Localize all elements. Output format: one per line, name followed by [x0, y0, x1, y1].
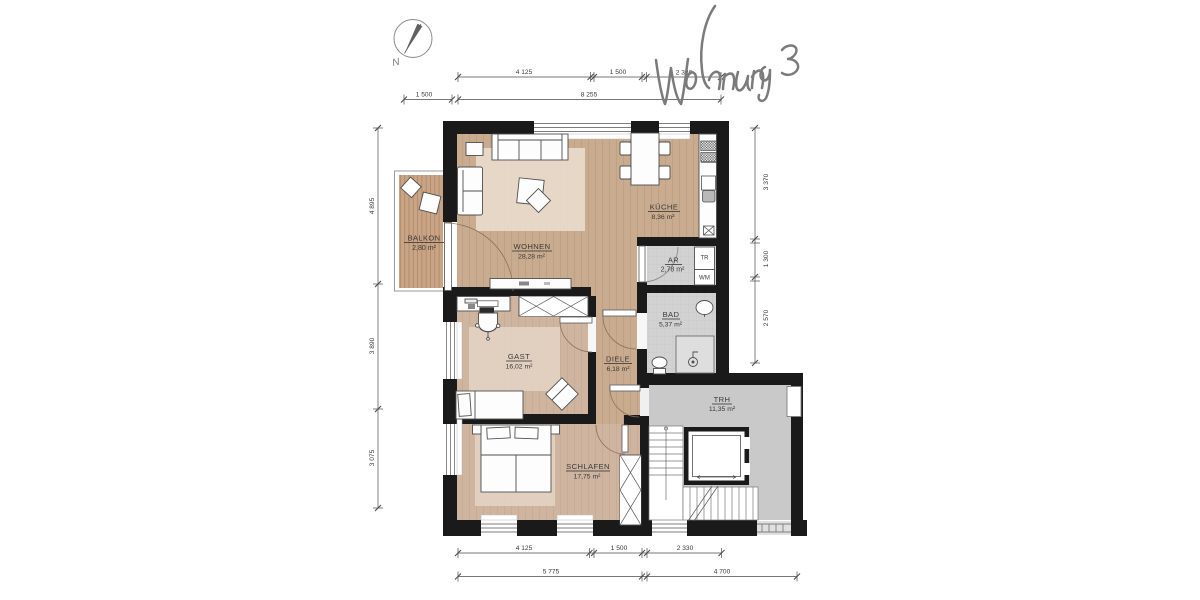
svg-text:WOHNEN: WOHNEN	[514, 242, 551, 251]
svg-text:5,37 m²: 5,37 m²	[659, 322, 683, 329]
svg-text:5 775: 5 775	[543, 569, 560, 576]
svg-text:4 125: 4 125	[516, 69, 533, 76]
svg-text:2 330: 2 330	[677, 545, 694, 552]
svg-text:1 500: 1 500	[611, 545, 628, 552]
svg-text:GAST: GAST	[508, 352, 530, 361]
svg-text:2 570: 2 570	[763, 309, 770, 326]
svg-text:1 500: 1 500	[416, 92, 433, 99]
svg-text:1 300: 1 300	[763, 250, 770, 267]
svg-text:2,80 m²: 2,80 m²	[412, 245, 436, 252]
svg-text:8 255: 8 255	[581, 92, 598, 99]
svg-text:11,35 m²: 11,35 m²	[709, 406, 736, 413]
svg-text:8,36 m²: 8,36 m²	[651, 214, 675, 221]
svg-text:TR: TR	[701, 256, 710, 262]
svg-text:DIELE: DIELE	[606, 355, 630, 364]
svg-text:KÜCHE: KÜCHE	[650, 203, 679, 212]
svg-text:4 895: 4 895	[369, 197, 376, 214]
svg-text:TRH: TRH	[714, 395, 731, 404]
svg-text:3 370: 3 370	[763, 173, 770, 190]
svg-text:4 125: 4 125	[516, 545, 533, 552]
svg-text:2,78 m²: 2,78 m²	[661, 267, 685, 274]
svg-text:BALKON: BALKON	[408, 234, 441, 243]
svg-text:3 890: 3 890	[369, 337, 376, 354]
svg-text:SCHLAFEN: SCHLAFEN	[566, 462, 610, 471]
svg-text:BAD: BAD	[663, 310, 680, 319]
svg-text:17,75 m²: 17,75 m²	[574, 474, 602, 481]
svg-text:1 500: 1 500	[610, 69, 627, 76]
svg-text:3 075: 3 075	[369, 449, 376, 466]
svg-text:WM: WM	[699, 276, 710, 282]
svg-text:4 700: 4 700	[714, 569, 731, 576]
svg-text:6,18 m²: 6,18 m²	[606, 366, 630, 373]
svg-text:28,28 m²: 28,28 m²	[518, 254, 546, 261]
svg-text:16,02 m²: 16,02 m²	[506, 364, 534, 371]
svg-text:AR: AR	[668, 256, 679, 265]
